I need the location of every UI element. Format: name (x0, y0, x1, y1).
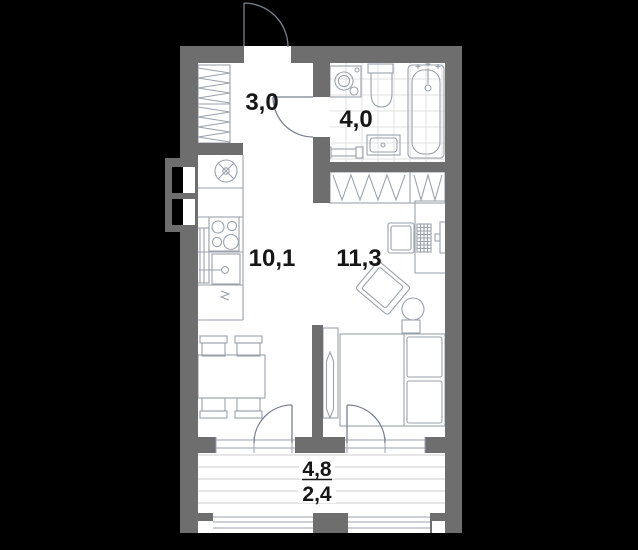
niche-dark (172, 167, 183, 193)
wall-bathroom-left-top (313, 63, 330, 97)
entry-door (244, 3, 288, 47)
floorplan-svg: 3,0 4,0 10,1 11,3 4,8 2,4 (0, 0, 638, 550)
parapet-notch-left (198, 521, 213, 533)
balcony-area-reduced-label: 2,4 (302, 483, 332, 506)
outer-glazing-right-opening (348, 513, 430, 533)
parapet-notch-right (432, 521, 445, 533)
wall-bathroom-left-bottom (313, 137, 330, 203)
wall-top-right (291, 46, 462, 63)
pier-outer-middle (313, 513, 348, 533)
outer-glazing-left-opening (213, 513, 313, 533)
hallway-area-label: 3,0 (245, 89, 278, 116)
pier-inner-left (198, 437, 216, 453)
wall-hallway-bottom (180, 143, 243, 155)
niche-light (183, 199, 195, 225)
wall-left (180, 46, 198, 533)
wall-right (445, 46, 462, 533)
floorplan-canvas: 3,0 4,0 10,1 11,3 4,8 2,4 (0, 0, 638, 550)
balcony-area-total-label: 4,8 (302, 458, 332, 481)
entry-opening (244, 46, 291, 63)
bathroom-area-label: 4,0 (339, 106, 372, 133)
entry-door-swing-arc (244, 3, 288, 47)
niche-light (183, 167, 195, 193)
inner-window-left-opening (216, 437, 295, 453)
kitchen-living-area-label: 10,1 (249, 245, 296, 272)
partition-wall (312, 325, 323, 437)
niche-dark (172, 199, 183, 225)
wall-bathroom-bottom (330, 162, 445, 172)
pier-inner-right (425, 437, 445, 453)
living-room-area-label: 11,3 (336, 245, 381, 272)
bathroom-door-opening (313, 97, 330, 137)
pier-inner-middle (295, 437, 345, 453)
